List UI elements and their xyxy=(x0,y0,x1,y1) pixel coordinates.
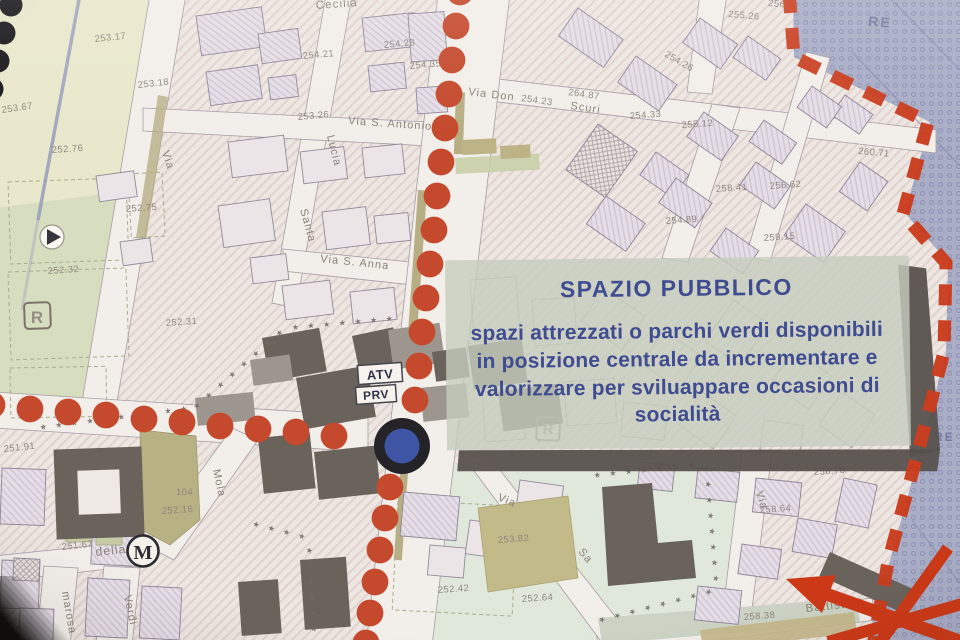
building xyxy=(85,578,130,638)
route-dot xyxy=(432,115,459,142)
elevation-label: 254.89 xyxy=(665,214,697,227)
building-crosshatch xyxy=(13,558,40,581)
urban-plan-map-photo: ★ ★ ★ ★ ★ ★ ★ ★ ★ ★ ★ ★ ★ ★ ★ ★ ★ ★ ★ ★ … xyxy=(0,0,960,640)
elevation-label: 259.15 xyxy=(763,231,795,244)
route-dot xyxy=(321,423,348,450)
building xyxy=(139,586,182,640)
building xyxy=(218,199,275,248)
elevation-label: 253.82 xyxy=(497,533,529,546)
building xyxy=(322,207,370,250)
elevation-label: 252.16 xyxy=(161,504,193,517)
building xyxy=(250,254,289,284)
route-dot xyxy=(428,149,455,176)
elevation-label: 252.31 xyxy=(165,316,197,329)
annotation-box: SPAZIO PUBBLICO spazi attrezzati o parch… xyxy=(445,255,940,476)
building xyxy=(427,545,465,578)
building-dark xyxy=(258,433,316,494)
building xyxy=(19,608,54,640)
building xyxy=(282,280,334,320)
courtyard xyxy=(77,469,121,514)
building xyxy=(196,7,267,56)
route-dot xyxy=(93,402,120,429)
building xyxy=(96,171,137,202)
route-dot xyxy=(169,409,196,436)
annotation-line: socialità xyxy=(635,403,721,427)
building xyxy=(400,492,460,541)
route-dot xyxy=(131,406,158,433)
prv-tag-label: PRV xyxy=(363,387,390,403)
olive-parcel xyxy=(462,138,497,155)
elevation-label: 252.32 xyxy=(47,264,79,277)
building xyxy=(0,468,46,526)
route-dot xyxy=(421,217,448,244)
route-dot xyxy=(439,47,466,74)
atv-tag: ATV xyxy=(357,362,402,384)
elevation-label: 255.12 xyxy=(681,118,713,131)
elevation-label: 258.64 xyxy=(759,503,791,516)
building xyxy=(738,544,782,579)
route-dot xyxy=(245,416,272,443)
route-dot xyxy=(55,399,82,426)
route-dot xyxy=(443,13,470,40)
route-dot xyxy=(377,474,404,501)
building xyxy=(362,144,405,178)
route-dot xyxy=(436,81,463,108)
annotation-line: valorizzare per sviluappare occasioni di xyxy=(475,374,880,401)
building xyxy=(268,75,298,100)
courtyard-building xyxy=(54,447,145,540)
elevation-label: 252.42 xyxy=(437,583,469,596)
route-dot xyxy=(372,505,399,532)
route-dot xyxy=(283,419,310,446)
node-core xyxy=(385,429,420,464)
route-dot xyxy=(402,387,429,414)
elevation-label: 254.33 xyxy=(629,109,661,122)
route-dot xyxy=(409,319,436,346)
annotation-title: SPAZIO PUBBLICO xyxy=(560,274,793,302)
route-dot xyxy=(406,353,433,380)
metro-symbol-letter: M xyxy=(134,542,153,564)
building xyxy=(228,135,288,178)
r-symbol-letter: R xyxy=(31,308,43,327)
route-dot xyxy=(367,537,394,564)
route-dot xyxy=(417,251,444,278)
prv-tag: PRV xyxy=(355,385,396,405)
route-dot xyxy=(424,183,451,210)
olive-parcel xyxy=(478,496,578,592)
route-dot xyxy=(413,285,440,312)
building xyxy=(368,62,407,92)
route-dot xyxy=(362,569,389,596)
central-node xyxy=(374,418,430,474)
building-dark xyxy=(314,446,381,500)
elevation-label: 256.62 xyxy=(769,179,801,192)
elevation-label: 252.75 xyxy=(125,202,157,215)
building xyxy=(374,212,411,243)
zone-label-re-top: RE xyxy=(868,13,893,31)
elevation-label: 252.76 xyxy=(51,143,83,156)
atv-tag-label: ATV xyxy=(366,366,394,383)
elevation-label: 258.41 xyxy=(715,182,747,195)
building-dark xyxy=(238,579,282,636)
elevation-label: 258.38 xyxy=(743,610,775,623)
elevation-label: 104 xyxy=(176,487,193,498)
building xyxy=(258,28,302,63)
building xyxy=(206,65,262,106)
olive-parcel xyxy=(500,144,531,159)
annotation-line: spazi attrezzati o parchi verdi disponib… xyxy=(470,318,883,345)
route-dot xyxy=(357,600,384,627)
elevation-label: 252.64 xyxy=(521,592,553,605)
building xyxy=(120,238,153,266)
route-dot xyxy=(17,396,44,423)
map-canvas: ★ ★ ★ ★ ★ ★ ★ ★ ★ ★ ★ ★ ★ ★ ★ ★ ★ ★ ★ ★ … xyxy=(0,0,960,640)
annotation-line: in posizione centrale da incrementare e xyxy=(476,346,877,373)
building xyxy=(695,468,740,502)
route-dot xyxy=(207,413,234,440)
